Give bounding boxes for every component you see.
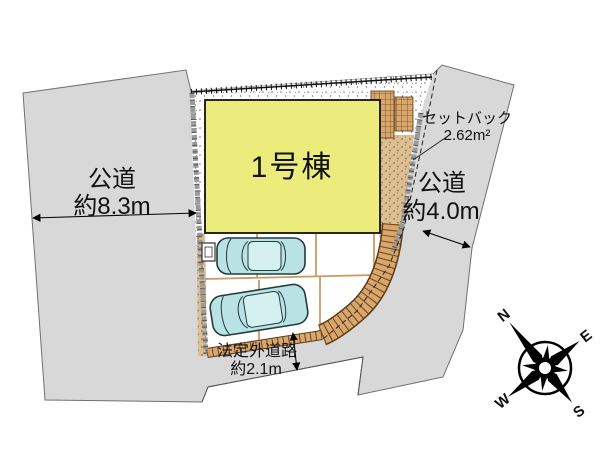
plot-plan: 1号棟 公道 約8.3m セットバック 2.62m² 公道 約4.0m 法定外道… (0, 0, 600, 469)
building-1: 1号棟 (205, 100, 380, 233)
car-1 (217, 238, 305, 274)
road-left-width: 約8.3m (73, 193, 150, 220)
building-label: 1号棟 (251, 151, 334, 184)
plot-plan-svg: 1号棟 公道 約8.3m セットバック 2.62m² 公道 約4.0m 法定外道… (0, 0, 600, 469)
road-right-name: 公道 (418, 170, 466, 197)
utility-box (202, 243, 215, 261)
setback-label: セットバック (422, 110, 512, 127)
road-left-name: 公道 (88, 166, 136, 193)
road-right-width: 約4.0m (402, 198, 479, 225)
road-bottom-name: 法定外道路 (217, 342, 297, 360)
setback-area: 2.62m² (444, 127, 491, 144)
road-bottom-width: 約2.1m (230, 360, 282, 378)
